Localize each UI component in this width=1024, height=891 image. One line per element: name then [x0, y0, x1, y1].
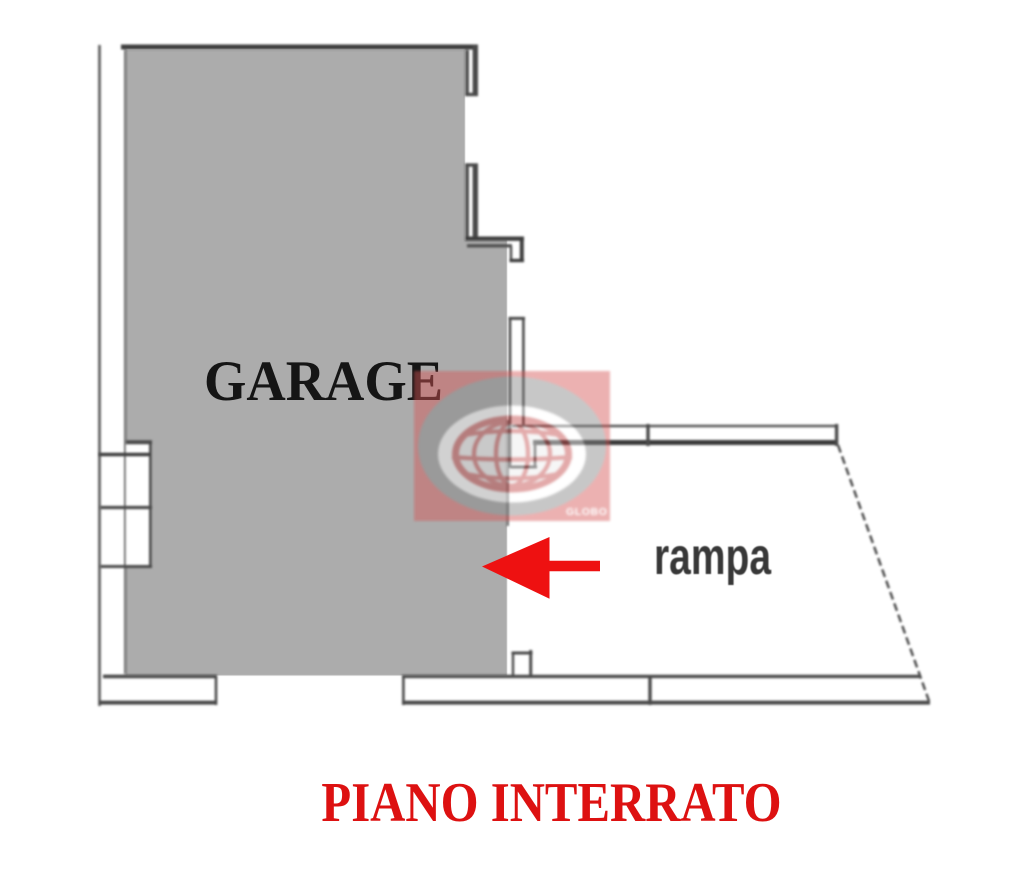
- svg-text:rampa: rampa: [654, 526, 771, 585]
- svg-text:GARAGE: GARAGE: [204, 350, 443, 413]
- svg-text:PIANO INTERRATO: PIANO INTERRATO: [321, 772, 781, 834]
- svg-text:GLOBO: GLOBO: [566, 506, 608, 518]
